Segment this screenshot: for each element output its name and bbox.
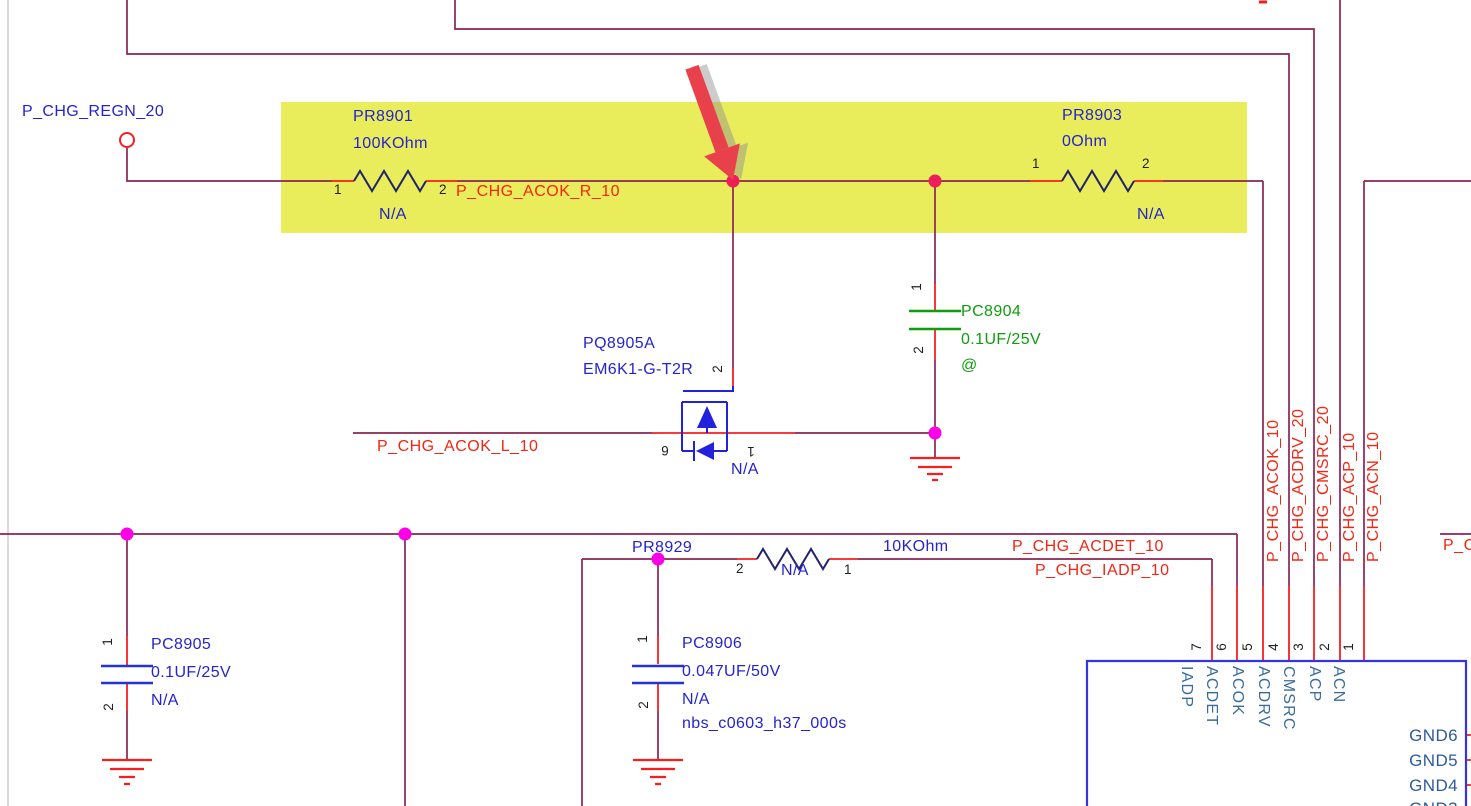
refdes-pr8929: PR8929 [632,539,692,557]
ground-symbol [102,760,152,784]
pin-number: 1 [744,443,758,459]
wire-net [0,0,1471,806]
value-pc8904: 0.1UF/25V [961,331,1041,349]
ic-pin-name-acdet: ACDET [1202,666,1220,726]
pin-number: 2 [911,343,927,357]
ic-pin-name-iadp: IADP [1177,666,1195,708]
footprint-pc8906: nbs_c0603_h37_000s [682,715,847,733]
ic-pin-name-gnd3: GND3 [1406,800,1458,806]
refdes-pr8901: PR8901 [353,108,413,126]
refdes-pq8905a: PQ8905A [583,335,655,353]
value-pr8929: 10KOhm [883,538,949,556]
net-label-iadp: P_CHG_IADP_10 [1035,562,1170,580]
pin-number: 1 [100,635,116,649]
schematic-canvas: P_CHG_REGN_20 PR8901 100KOhm N/A 1 2 P_C… [0,0,1471,806]
refdes-pc8904: PC8904 [961,303,1021,321]
pin-number: 2 [710,362,726,376]
port-label-regn: P_CHG_REGN_20 [22,103,164,121]
fit-pc8906: N/A [682,691,710,709]
value-pr8903: 0Ohm [1062,133,1107,151]
capacitor-pc8906-symbol [632,666,684,683]
ic-pin-name-gnd6: GND6 [1406,727,1458,746]
pin-number: 1 [1032,157,1040,172]
net-label-acn-10: P_CHG_ACN_10 [1365,432,1383,563]
refdes-pr8903: PR8903 [1062,107,1122,125]
ic-pin-number: 2 [1317,640,1333,654]
capacitor-pc8904-symbol [909,311,961,329]
pin-number: 2 [1142,157,1150,172]
pin-number: 2 [736,562,744,577]
value-pc8906: 0.047UF/50V [682,663,781,681]
mosfet-pq8905a-symbol [682,386,733,461]
ic-pin-name-acdrv: ACDRV [1254,666,1272,728]
fit-pr8903: N/A [1137,206,1165,224]
pin-number: 1 [844,563,852,578]
resistor-pr8901-symbol [354,171,426,191]
pin-number: 2 [439,183,447,198]
value-pr8901: 100KOhm [353,135,428,153]
ic-pin-number: 1 [1341,640,1357,654]
pin-number: 1 [635,632,651,646]
net-label-acdrv-20: P_CHG_ACDRV_20 [1290,409,1308,562]
ic-pin-name-gnd4: GND4 [1406,777,1458,796]
pin-number: 6 [658,442,672,458]
ground-symbol [910,458,960,480]
pin-number: 1 [909,280,925,294]
ic-pin-name-acok: ACOK [1228,666,1246,716]
pin-number: 1 [334,183,342,198]
net-label-acdet: P_CHG_ACDET_10 [1012,538,1164,556]
ic-pin-number: 3 [1291,640,1307,654]
net-label-right-truncated: P_C [1443,537,1471,555]
fit-pq8905a: N/A [731,461,759,479]
part-pq8905a: EM6K1-G-T2R [583,361,693,379]
net-label-acok-10: P_CHG_ACOK_10 [1265,419,1283,562]
fit-pc8904: @ [961,357,978,375]
callout-arrow [674,58,759,188]
fit-pr8929: N/A [781,562,809,580]
schematic-graphics [0,0,1471,806]
resistor-pr8903-symbol [1062,171,1134,191]
fit-pr8901: N/A [379,206,407,224]
refdes-pc8905: PC8905 [151,636,211,654]
net-label-acok-l: P_CHG_ACOK_L_10 [377,438,538,456]
ground-symbol [633,760,683,784]
net-label-cmsrc-20: P_CHG_CMSRC_20 [1315,406,1333,562]
value-pc8905: 0.1UF/25V [151,664,231,682]
ic-pin-number: 4 [1266,640,1282,654]
pin-number: 2 [636,698,652,712]
ic-pin-name-cmsrc: CMSRC [1279,666,1297,731]
capacitor-pc8905-symbol [101,666,153,683]
net-label-acok-r: P_CHG_ACOK_R_10 [456,183,620,201]
pin-number: 2 [101,700,117,714]
ic-pin-name-acn: ACN [1329,666,1347,703]
fit-pc8905: N/A [151,692,179,710]
net-label-acp-10: P_CHG_ACP_10 [1341,432,1359,562]
ic-pin-number: 7 [1189,640,1205,654]
ic-pin-name-gnd5: GND5 [1406,752,1458,771]
port-circle [120,133,134,147]
ic-pin-number: 5 [1240,640,1256,654]
refdes-pc8906: PC8906 [682,635,742,653]
ic-pin-number: 6 [1214,640,1230,654]
ic-pin-name-acp: ACP [1305,666,1323,703]
